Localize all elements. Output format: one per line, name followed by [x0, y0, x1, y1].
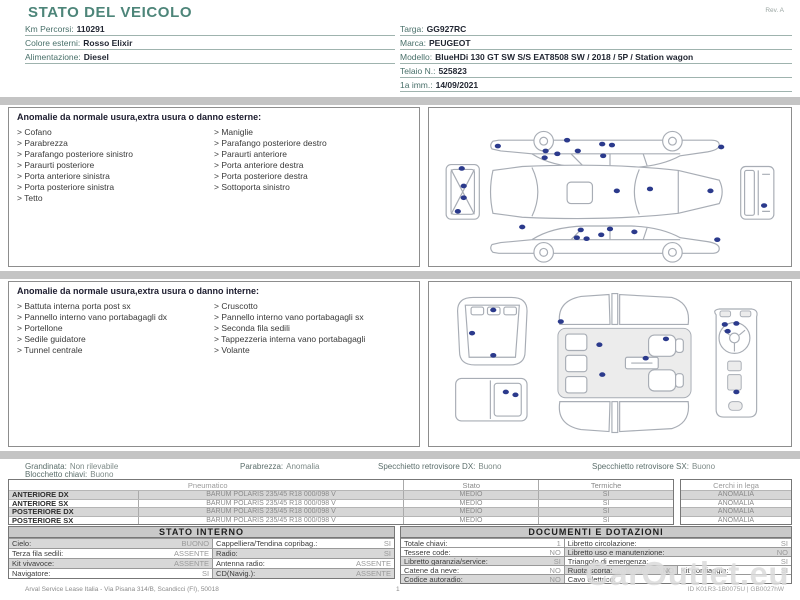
exterior-anomalies-panel: Anomalie da normale usura,extra usura o … — [8, 107, 420, 267]
list-item: > Parabrezza — [17, 138, 214, 148]
table-row: ANTERIORE DX BARUM POLARIS 235/45 R18 00… — [9, 490, 673, 499]
vehicle-info-left: Km Percorsi:110291 Colore esterni:Rosso … — [25, 22, 395, 64]
table-row: Codice autoradio:NO Cavo elettrico: — [401, 574, 791, 583]
list-item: > Volante — [214, 345, 411, 355]
table-row: POSTERIORE DX BARUM POLARIS 235/45 R18 0… — [9, 507, 673, 516]
exterior-list-left: > Cofano > Parabrezza > Parafango poster… — [17, 127, 214, 204]
field-marca: Marca:PEUGEOT — [400, 36, 792, 50]
table-row: ANTERIORE SX BARUM POLARIS 235/45 R18 00… — [9, 499, 673, 508]
stato-interno-table: STATO INTERNO Cielo:BUONO Cappelliera/Te… — [8, 526, 395, 579]
list-item: > Sedile guidatore — [17, 334, 214, 344]
list-item: > Pannello interno vano portabagagli dx — [17, 312, 214, 322]
column-header-termiche: Termiche — [539, 480, 673, 490]
list-item: > Porta posteriore sinistra — [17, 182, 214, 192]
field-colore: Colore esterni:Rosso Elixir — [25, 36, 395, 50]
interior-damage-diagram — [428, 281, 792, 447]
list-item: > Parafango posteriore destro — [214, 138, 411, 148]
interior-anomalies-panel: Anomalie da normale usura,extra usura o … — [8, 281, 420, 447]
list-item: > Sottoporta sinistro — [214, 182, 411, 192]
tyre-table-header: Pneumatico Stato Termiche — [9, 480, 673, 490]
field-telaio: Telaio N.:525823 — [400, 64, 792, 78]
column-header-pneumatico: Pneumatico — [9, 480, 404, 490]
list-item: > Paraurti anteriore — [214, 149, 411, 159]
section-separator — [0, 97, 800, 105]
list-item: > Porta anteriore sinistra — [17, 171, 214, 181]
list-item: > Tunnel centrale — [17, 345, 214, 355]
list-item: > Porta anteriore destra — [214, 160, 411, 170]
car-exterior-diagram-icon — [429, 108, 791, 266]
list-item: > Porta posteriore destra — [214, 171, 411, 181]
list-item: > Maniglie — [214, 127, 411, 137]
column-header-cerchi: Cerchi in lega — [681, 480, 791, 490]
section-separator — [0, 451, 800, 459]
footer-document-id: ID K01R3-1B0075U | GB0027hW — [688, 586, 784, 593]
field-alimentazione: Alimentazione:Diesel — [25, 50, 395, 64]
field-targa: Targa:GG927RC — [400, 22, 792, 36]
list-item: > Parafango posteriore sinistro — [17, 149, 214, 159]
list-item: > Seconda fila sedili — [214, 323, 411, 333]
revision-label: Rev. A — [765, 7, 784, 14]
summary-parabrezza: Parabrezza:Anomalia — [240, 462, 320, 472]
table-row: Totale chiavi:1 Libretto circolazione:SI — [401, 538, 791, 547]
table-row: Kit vivavoce:ASSENTE Antenna radio:ASSEN… — [9, 558, 394, 568]
section-separator — [0, 271, 800, 279]
exterior-damage-diagram — [428, 107, 792, 267]
stato-interno-title: STATO INTERNO — [9, 527, 394, 538]
list-item: > Cruscotto — [214, 301, 411, 311]
car-interior-diagram-icon — [429, 282, 791, 446]
list-item: > Tappezzeria interna vano portabagagli — [214, 334, 411, 344]
interior-list-right: > Cruscotto > Pannello interno vano port… — [214, 301, 411, 356]
vehicle-info-right: Targa:GG927RC Marca:PEUGEOT Modello:Blue… — [400, 22, 792, 92]
table-row: Tessere code:NO Libretto uso e manutenzi… — [401, 547, 791, 556]
table-row: Libretto garanzia/service:SI Triangolo d… — [401, 556, 791, 565]
documenti-title: DOCUMENTI E DOTAZIONI — [401, 527, 791, 538]
table-row: Navigatore:SI CD(Navig.):ASSENTE — [9, 568, 394, 578]
interior-list-left: > Battuta interna porta post sx > Pannel… — [17, 301, 214, 356]
list-item: > Tetto — [17, 193, 214, 203]
footer-company: Arval Service Lease Italia - Via Pisana … — [25, 586, 219, 593]
exterior-list-right: > Maniglie > Parafango posteriore destro… — [214, 127, 411, 204]
documenti-dotazioni-table: DOCUMENTI E DOTAZIONI Totale chiavi:1 Li… — [400, 526, 792, 584]
vehicle-report-page: STATO DEL VEICOLO Rev. A Km Percorsi:110… — [0, 0, 800, 600]
table-row: POSTERIORE SX BARUM POLARIS 235/45 R18 0… — [9, 516, 673, 525]
table-row: Terza fila sedili:ASSENTE Radio:SI — [9, 548, 394, 558]
table-row: Catene da neve:NO Ruota scorta:NO Kit go… — [401, 565, 791, 574]
interior-anomalies-heading: Anomalie da normale usura,extra usura o … — [17, 286, 411, 296]
tyre-rims-column: Cerchi in lega ANOMALIA ANOMALIA ANOMALI… — [680, 479, 792, 525]
list-item: > Cofano — [17, 127, 214, 137]
tyre-table: Pneumatico Stato Termiche ANTERIORE DX B… — [8, 479, 792, 525]
field-prima-imm: 1a imm.:14/09/2021 — [400, 78, 792, 92]
field-km: Km Percorsi:110291 — [25, 22, 395, 36]
field-modello: Modello:BlueHDi 130 GT SW S/S EAT8508 SW… — [400, 50, 792, 64]
column-header-stato: Stato — [404, 480, 539, 490]
summary-specchietto-sx: Specchietto retrovisore SX:Buono — [592, 462, 715, 472]
list-item: > Pannello interno vano portabagagli sx — [214, 312, 411, 322]
list-item: > Paraurti posteriore — [17, 160, 214, 170]
table-row: Cielo:BUONO Cappelliera/Tendina copribag… — [9, 538, 394, 548]
list-item: > Portellone — [17, 323, 214, 333]
footer-page-number: 1 — [396, 586, 400, 593]
exterior-anomalies-heading: Anomalie da normale usura,extra usura o … — [17, 112, 411, 122]
page-title: STATO DEL VEICOLO — [28, 4, 192, 21]
summary-specchietto-dx: Specchietto retrovisore DX:Buono — [378, 462, 502, 472]
list-item: > Battuta interna porta post sx — [17, 301, 214, 311]
